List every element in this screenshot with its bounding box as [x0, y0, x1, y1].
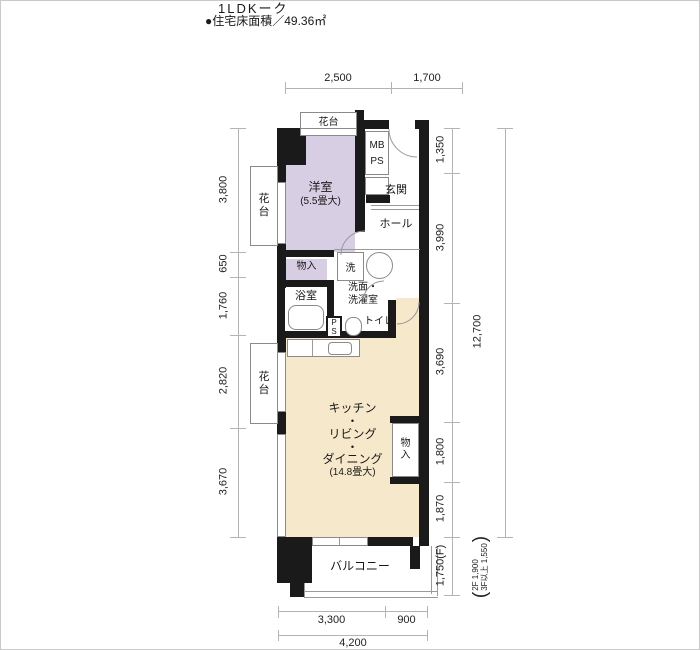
dimension-tick	[230, 537, 246, 538]
dimension-tick	[230, 335, 246, 336]
dimension-tick	[230, 277, 246, 278]
dim-right: 3,690	[435, 330, 448, 394]
ldk-door-arc	[397, 302, 419, 324]
dimension-tick	[230, 428, 246, 429]
dim-top-left: 2,500	[285, 72, 391, 84]
balcony-depth-note: ( 2F 1,900 3F以上 1,550 )	[469, 524, 491, 610]
dimension-tick	[230, 128, 246, 129]
dimension-line	[505, 128, 506, 537]
dimension-line	[278, 635, 428, 636]
door-arcs	[0, 0, 700, 650]
dim-top-right: 1,700	[391, 72, 463, 84]
dim-left: 3,800	[218, 158, 231, 222]
floor-plan-page: 1LDKーク ●住宅床面積／49.36㎡ 花台 花台 花台 MB PS	[0, 0, 700, 650]
dim-right: 1,870	[435, 477, 448, 541]
dim-left: 2,820	[218, 349, 231, 413]
dimension-tick	[230, 252, 246, 253]
note-paren: )	[471, 536, 490, 542]
washroom-door-arc	[363, 281, 384, 302]
dim-bottom-total: 4,200	[278, 637, 428, 649]
dim-bottom-left: 3,300	[278, 614, 385, 626]
dim-bottom-right: 900	[385, 614, 428, 626]
dimension-tick	[497, 128, 513, 129]
note-line1: 2F 1,900	[471, 543, 480, 591]
dim-left: 3,670	[218, 450, 231, 514]
dim-right: 1,750(F)	[435, 534, 448, 598]
entrance-door-arc	[389, 129, 417, 157]
dim-right-total: 12,700	[472, 300, 485, 364]
note-line2: 3F以上 1,550	[480, 543, 489, 591]
dimension-tick	[444, 303, 460, 304]
dim-right: 1,800	[435, 420, 448, 484]
dimension-line	[452, 128, 453, 595]
dimension-tick	[497, 537, 513, 538]
bedroom-door-arc	[341, 231, 365, 255]
dimension-line	[285, 88, 463, 89]
dim-right: 3,990	[435, 206, 448, 270]
dimension-line	[278, 611, 428, 612]
note-paren: (	[471, 592, 490, 598]
dim-right: 1,350	[435, 118, 448, 182]
dim-left: 1,760	[218, 274, 231, 338]
dimension-line	[238, 128, 239, 537]
